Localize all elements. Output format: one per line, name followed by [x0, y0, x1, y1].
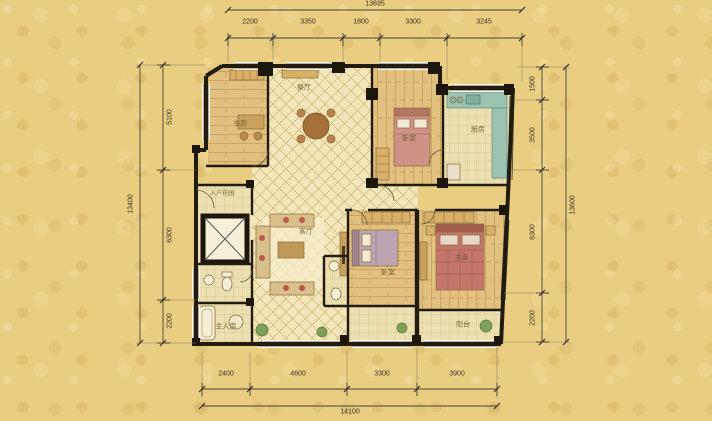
dim-left-segment-1: 5100 [167, 109, 174, 125]
dim-right-segment-3: 6300 [530, 224, 537, 240]
room-label-entry-garden: 入户花园 [210, 191, 234, 197]
dim-bottom-segment-3: 3300 [374, 371, 390, 378]
dim-left-segment-2: 6300 [167, 227, 174, 243]
room-label-living: 客厅 [299, 229, 313, 236]
dim-bottom-segment-2: 4600 [290, 371, 306, 378]
dim-bottom-segment-4: 3900 [449, 371, 465, 378]
room-label-master-bedroom: 主卧 [455, 255, 469, 262]
dim-top-segment-4: 3300 [405, 19, 421, 26]
dim-bottom-segment-1: 2400 [218, 371, 234, 378]
dim-top-segment-2: 3350 [300, 19, 316, 26]
floorplan-canvas: 13695 2200 3350 1800 3300 3245 2400 4600… [0, 0, 712, 421]
dim-right-segment-2: 3500 [530, 127, 537, 143]
room-label-study: 书房 [233, 121, 247, 128]
room-label-bedroom-mid: 卧室 [381, 270, 395, 277]
room-label-dining: 餐厅 [297, 85, 311, 92]
dim-left-total: 13400 [128, 194, 135, 213]
dim-top-segment-3: 1800 [353, 19, 369, 26]
dim-top-segment-1: 2200 [242, 19, 258, 26]
room-label-bottom-left: 主人房 [216, 324, 237, 331]
dim-right-segment-1: 1500 [530, 76, 537, 92]
room-label-bedroom-top: 卧室 [402, 136, 416, 143]
floorplan-drawing [0, 0, 712, 421]
room-label-kitchen: 厨房 [471, 127, 485, 134]
dim-bottom-total: 14100 [340, 409, 359, 416]
dim-top-segment-5: 3245 [476, 19, 492, 26]
dim-right-total: 13600 [570, 195, 577, 214]
dim-left-segment-3: 2200 [167, 313, 174, 329]
dim-right-segment-4: 2200 [530, 310, 537, 326]
dim-top-total: 13695 [365, 1, 384, 8]
room-label-balcony: 阳台 [456, 322, 470, 329]
